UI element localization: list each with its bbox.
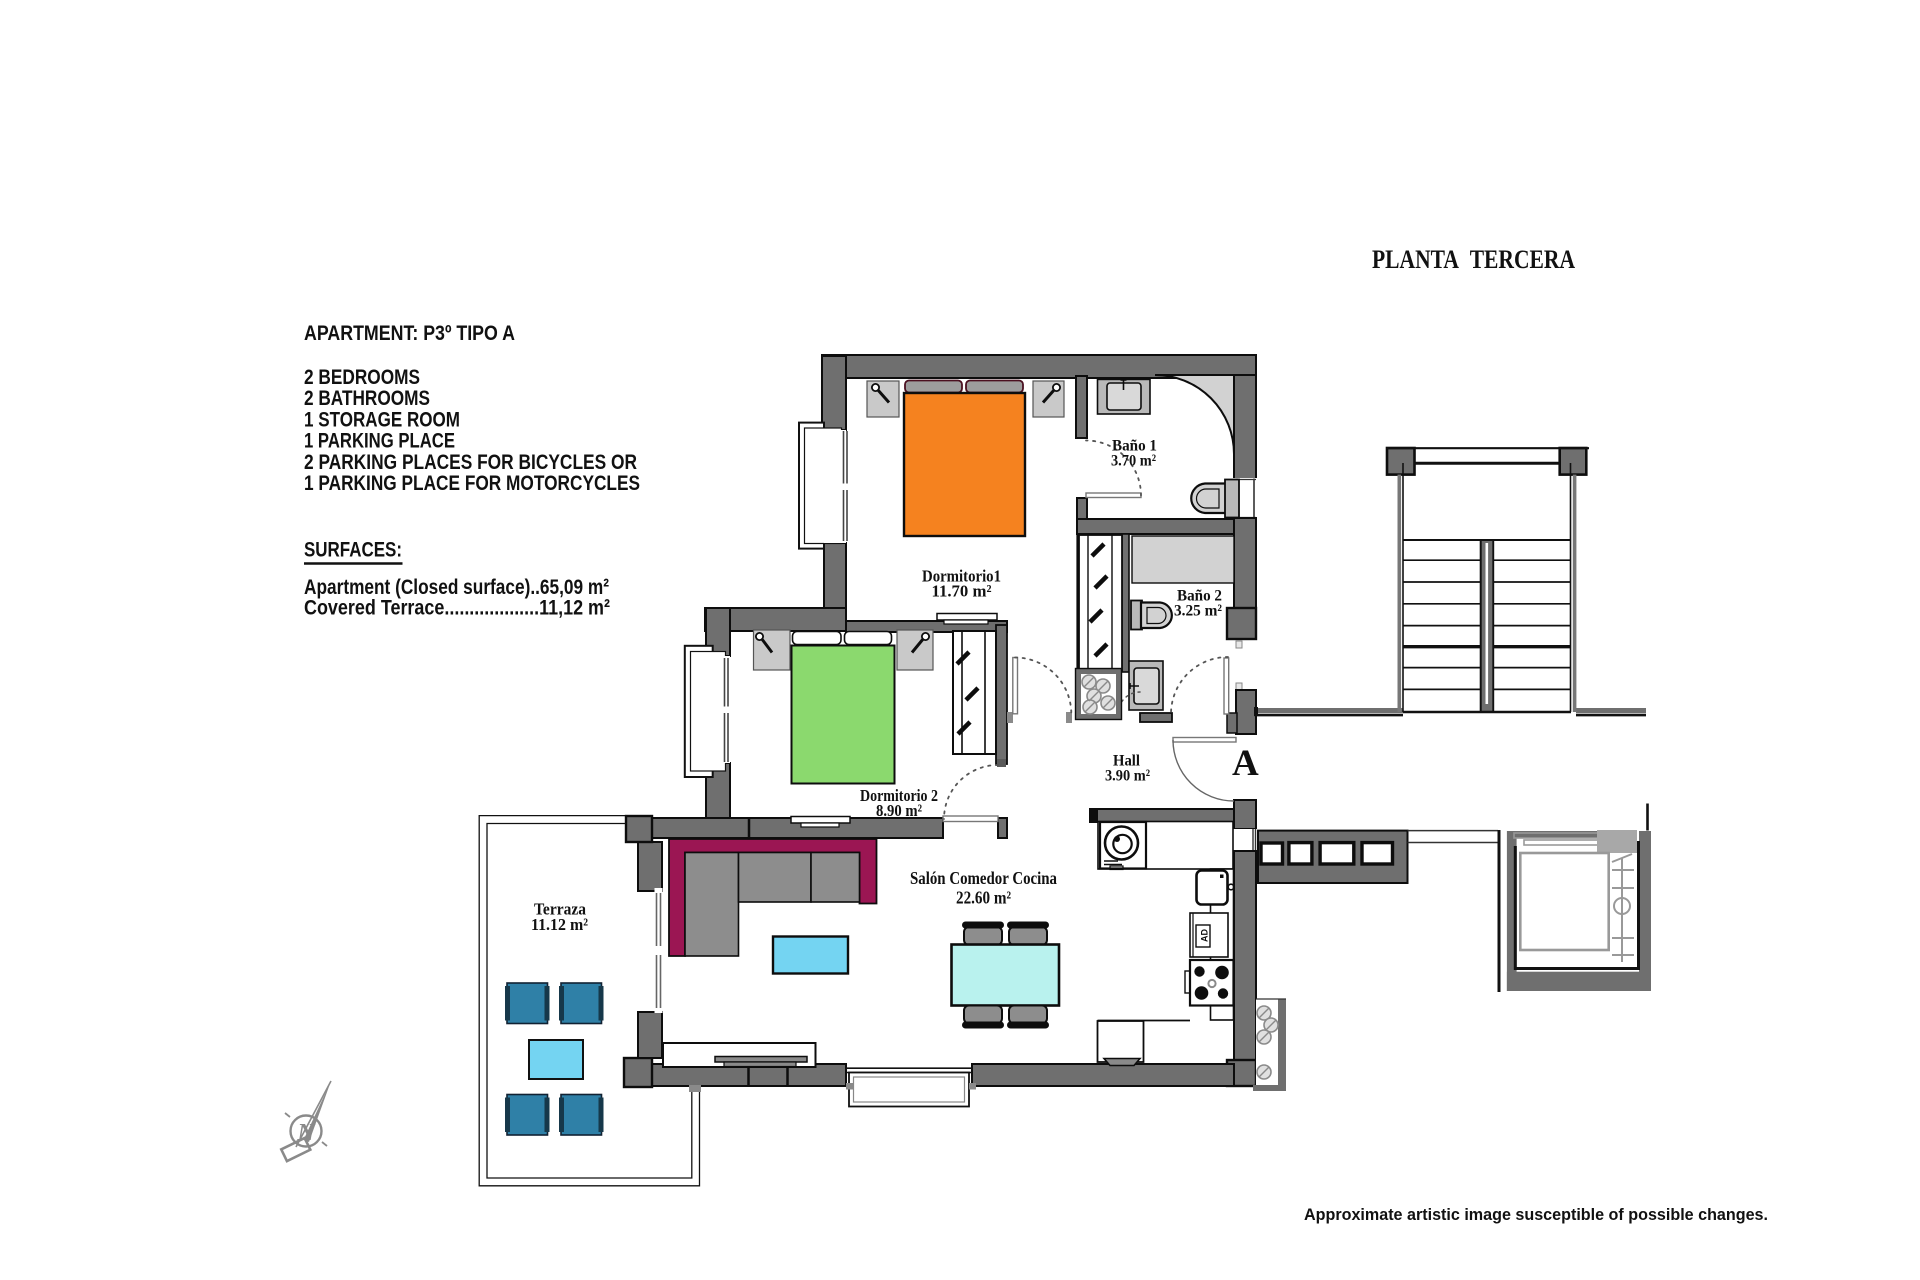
- svg-text:AD: AD: [1200, 929, 1210, 942]
- svg-text:3.25 m²: 3.25 m²: [1174, 602, 1222, 619]
- svg-text:1 PARKING PLACE FOR MOTORCYCLE: 1 PARKING PLACE FOR MOTORCYCLES: [304, 471, 640, 495]
- svg-text:22.60 m²: 22.60 m²: [956, 888, 1011, 908]
- svg-text:11.12 m²: 11.12 m²: [531, 915, 588, 934]
- svg-text:SURFACES:: SURFACES:: [304, 538, 402, 562]
- svg-text:PLANTA TERCERA: PLANTA TERCERA: [1372, 245, 1575, 274]
- svg-text:Covered Terrace...............: Covered Terrace...................11,12 …: [304, 596, 610, 620]
- svg-text:3.90 m²: 3.90 m²: [1105, 768, 1150, 785]
- svg-text:Approximate artistic image sus: Approximate artistic image susceptible o…: [1304, 1206, 1768, 1224]
- svg-text:8.90 m²: 8.90 m²: [876, 801, 922, 820]
- svg-text:11.70 m²: 11.70 m²: [932, 582, 992, 601]
- svg-text:APARTMENT: P3º TIPO A: APARTMENT: P3º TIPO A: [304, 321, 515, 345]
- svg-text:N: N: [296, 1120, 316, 1146]
- svg-text:3.70 m²: 3.70 m²: [1111, 452, 1156, 469]
- svg-text:A: A: [1232, 743, 1259, 784]
- svg-text:Salón Comedor Cocina: Salón Comedor Cocina: [910, 868, 1057, 888]
